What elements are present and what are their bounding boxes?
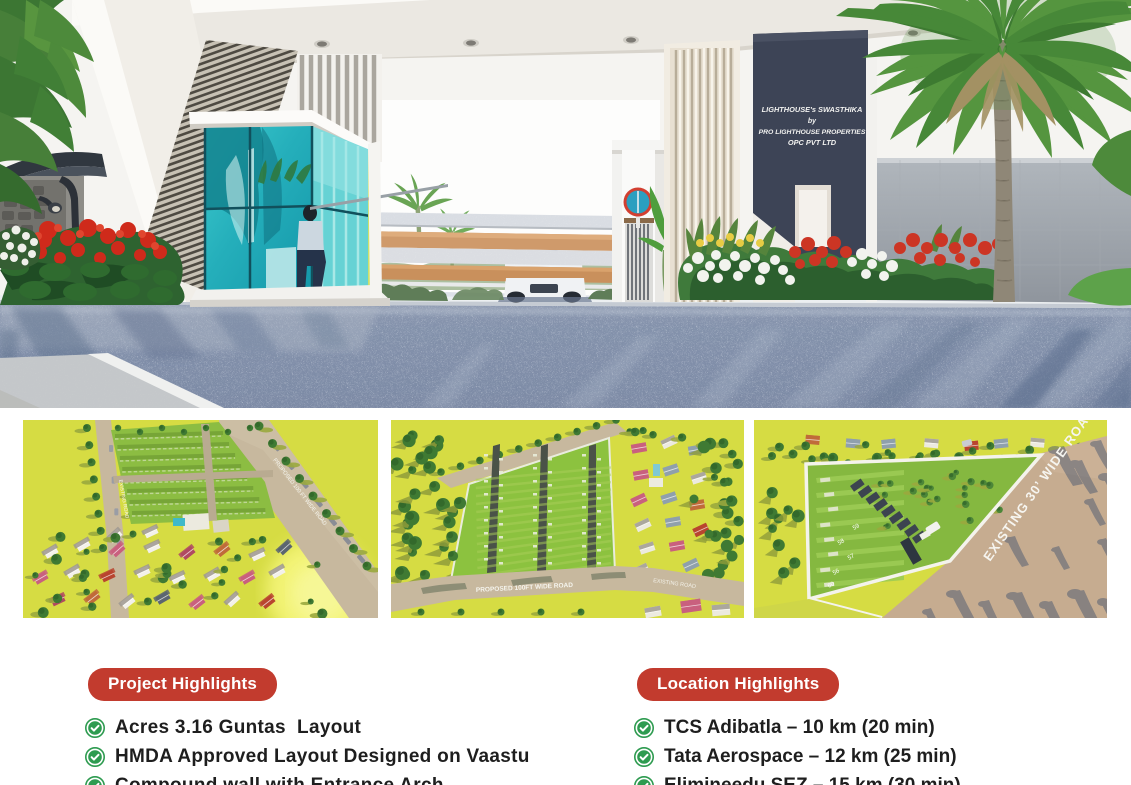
svg-text:LIGHTHOUSE's SWASTHIKA: LIGHTHOUSE's SWASTHIKA <box>762 105 863 114</box>
svg-text:by: by <box>808 118 817 125</box>
svg-text:OPC PVT LTD: OPC PVT LTD <box>788 138 837 147</box>
svg-text:PRO LIGHTHOUSE PROPERTIES: PRO LIGHTHOUSE PROPERTIES <box>759 129 866 136</box>
